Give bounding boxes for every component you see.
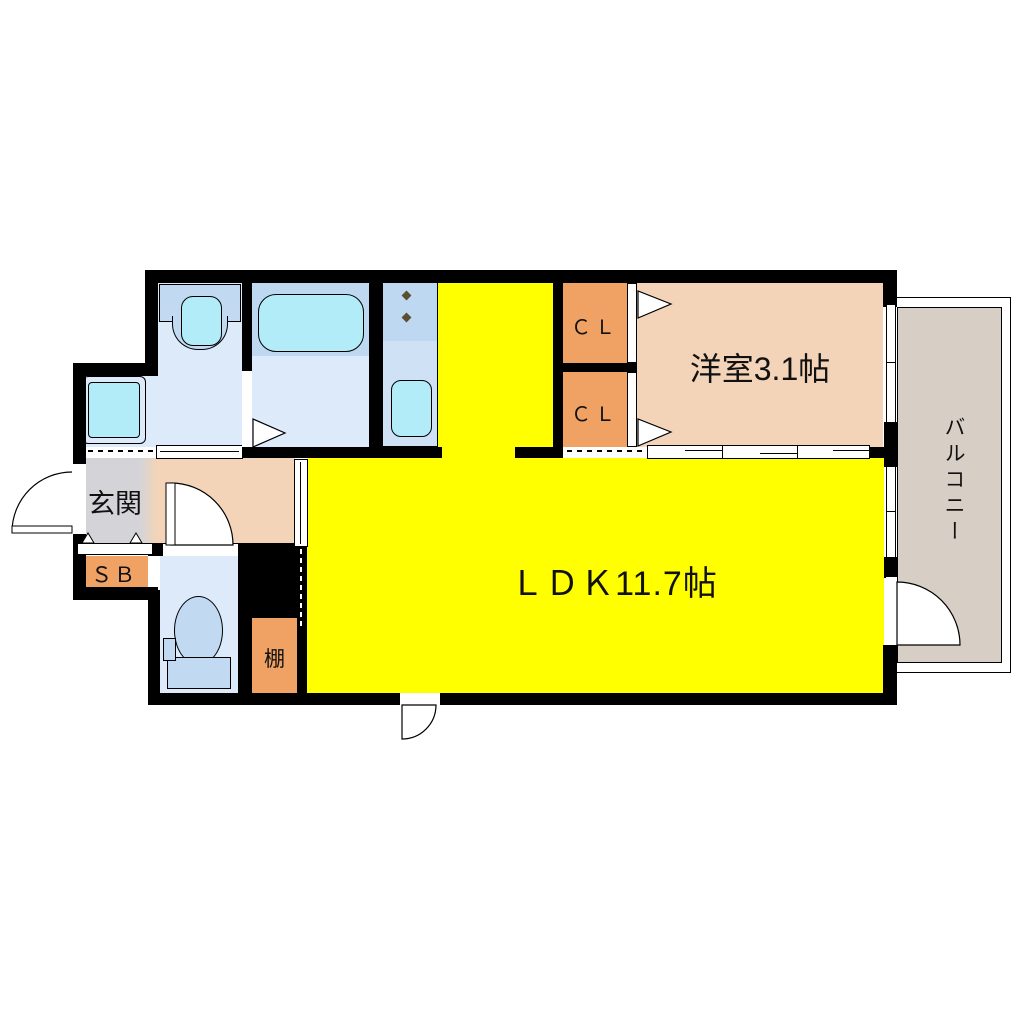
wall-east-4 — [883, 645, 897, 705]
ldk-label: ＬＤＫ11.7帖 — [488, 556, 740, 605]
washroom-slide-panel — [156, 445, 243, 459]
closet-upper-door-strip — [627, 283, 637, 363]
toilet-tank — [167, 657, 231, 689]
toilet-door-opening — [163, 544, 238, 556]
wall-ldk-west — [297, 543, 307, 695]
room-kitchen-corridor-opening — [442, 447, 515, 458]
bathtub — [258, 294, 364, 352]
window-ldk — [886, 466, 896, 558]
closet-lower-label: ＣＬ — [563, 398, 627, 427]
bathroom-door-strip — [242, 371, 252, 447]
wall-step — [73, 363, 158, 376]
entrance-door-leaf — [12, 526, 72, 533]
wall-left-c — [148, 590, 160, 705]
western-slide-divider — [797, 446, 798, 458]
wall-bottom — [148, 693, 897, 705]
wall-south-c — [868, 447, 897, 458]
hall-ldk-slide-panel — [294, 459, 308, 547]
wall-left-upper — [145, 270, 158, 366]
wall-toilet-right — [238, 543, 252, 695]
wall-east-3 — [884, 557, 897, 578]
western-slide-line — [685, 450, 722, 451]
floor-plan: ＬＤＫ11.7帖 洋室3.1帖 バルコニー 玄関 ＳＢ ＣＬ ＣＬ 棚 — [0, 0, 1020, 1020]
hall-ldk-slide-line — [300, 462, 301, 544]
wall-left-a — [73, 376, 86, 466]
wall-east-1 — [883, 277, 897, 307]
window-tick — [886, 511, 896, 512]
wall-south-a — [240, 447, 442, 458]
wall-top — [145, 270, 897, 283]
entrance-step-strip — [78, 543, 152, 555]
kitchen-sink — [391, 380, 432, 437]
window-tick — [886, 362, 896, 363]
balcony-label: バルコニー — [932, 383, 968, 578]
hall-ldk-slide-dashes — [300, 549, 302, 629]
washroom-slide-dashes — [88, 450, 156, 452]
room-kitchen-corridor — [438, 283, 553, 447]
closet-lower-door-strip — [627, 372, 637, 447]
ldk-south-door-arc — [402, 705, 436, 739]
closet-upper-label: ＣＬ — [563, 311, 627, 340]
wall-east-2 — [884, 422, 897, 467]
western-slide-line — [760, 453, 797, 454]
wall-corridor-closet — [553, 282, 563, 458]
entrance-label: 玄関 — [84, 482, 146, 521]
toilet-bowl — [174, 596, 223, 665]
wall-south-b — [515, 447, 563, 458]
shoe-box-label: ＳＢ — [80, 559, 148, 589]
washroom-slide-panel-line — [160, 451, 239, 452]
entrance-door-arc — [12, 472, 72, 532]
toilet-flush-handle — [163, 638, 176, 661]
kitchen-stove — [382, 282, 438, 342]
western-slide-track — [565, 447, 647, 457]
western-room-label: 洋室3.1帖 — [650, 344, 870, 390]
ldk-south-door-opening — [400, 693, 440, 705]
western-slide-line — [833, 450, 870, 451]
washing-machine-pan-inner — [88, 382, 140, 438]
washroom-slide-track — [86, 447, 158, 457]
room-hall — [148, 458, 295, 543]
balcony-door-opening — [886, 577, 897, 645]
room-bathroom — [252, 356, 369, 447]
vanity-sink — [181, 296, 222, 346]
wall-bath-kitchen — [369, 282, 382, 458]
western-slide-panels — [647, 445, 870, 459]
western-slide-divider — [722, 446, 723, 458]
wall-wash-bath — [242, 282, 252, 371]
window-western-room — [886, 304, 896, 423]
shelf-label: 棚 — [252, 643, 297, 673]
western-slide-dashes — [567, 450, 645, 452]
wall-closet-divider — [563, 363, 637, 372]
